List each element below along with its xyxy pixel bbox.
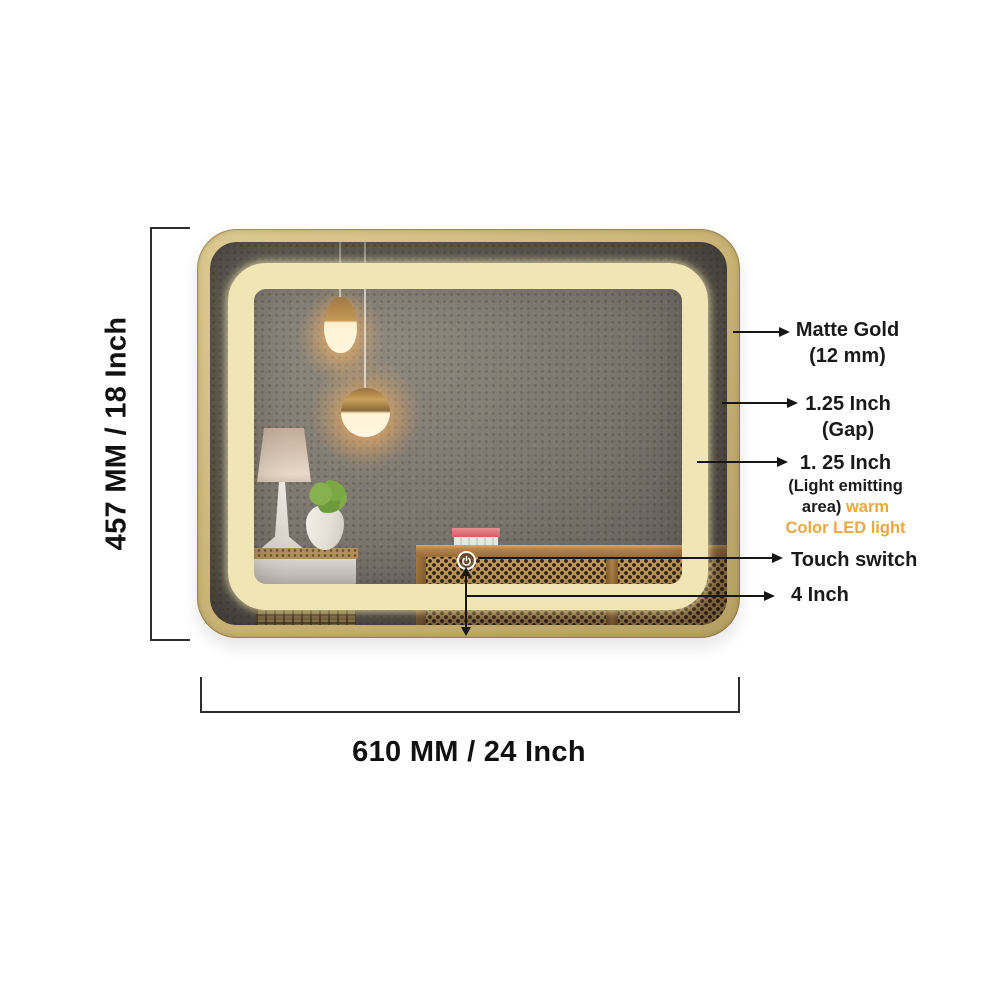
callout-gap-label: 1.25 Inch (Gap) — [768, 391, 928, 443]
height-dimension-label: 457 MM / 18 Inch — [101, 284, 134, 584]
power-icon — [461, 555, 472, 566]
height-bracket-line — [150, 227, 152, 641]
gap-size-title: 1.25 Inch — [768, 391, 928, 417]
callout-frame-label: Matte Gold (12 mm) — [765, 317, 930, 369]
led-desc-line3-accent: warm — [846, 498, 889, 516]
callout-line-touch-switch — [478, 557, 773, 559]
led-desc-line3: area) warm — [758, 497, 933, 518]
height-bracket-tick-top — [150, 227, 190, 229]
height-bracket-tick-bottom — [150, 639, 190, 641]
offset-measure-line — [465, 575, 467, 628]
gap-size-subtitle: (Gap) — [768, 417, 928, 443]
arrowhead-touch-switch — [772, 553, 783, 563]
product-dimension-diagram: 457 MM / 18 Inch 610 MM / 24 Inch — [0, 0, 1000, 1000]
offset-arrow-down — [461, 627, 471, 636]
led-desc-line4: Color LED light — [758, 518, 933, 539]
width-bracket-tick-left — [200, 677, 202, 713]
offset-title: 4 Inch — [791, 582, 911, 608]
width-bracket-tick-right — [738, 677, 740, 713]
wicker-basket — [256, 608, 356, 625]
callout-led-label: 1. 25 Inch (Light emitting area) warm Co… — [758, 450, 933, 539]
led-desc-line3-dark: area) — [802, 498, 841, 516]
callout-line-offset — [466, 595, 765, 597]
touch-switch-title: Touch switch — [791, 547, 961, 573]
width-bracket-line — [200, 711, 740, 713]
led-size-title: 1. 25 Inch — [758, 450, 933, 476]
frame-material-subtitle: (12 mm) — [765, 343, 930, 369]
mirror-frame — [197, 229, 740, 638]
width-dimension-label: 610 MM / 24 Inch — [269, 736, 669, 769]
callout-offset-label: 4 Inch — [791, 582, 911, 608]
led-desc-line2: (Light emitting — [758, 476, 933, 497]
arrowhead-offset — [764, 591, 775, 601]
frame-material-title: Matte Gold — [765, 317, 930, 343]
offset-arrow-up — [461, 567, 471, 576]
callout-touch-switch-label: Touch switch — [791, 547, 961, 573]
